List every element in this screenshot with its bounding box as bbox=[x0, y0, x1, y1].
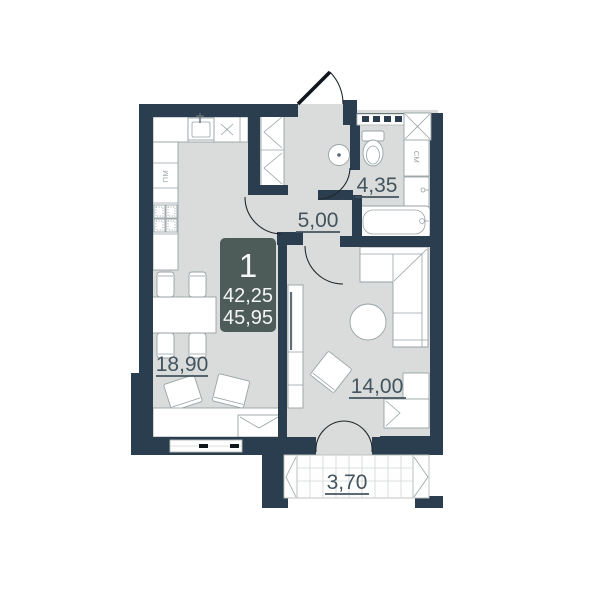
dining-table bbox=[150, 297, 216, 333]
wall bbox=[352, 195, 362, 240]
wall bbox=[248, 117, 260, 187]
room-label-living-room: 14,00 bbox=[351, 375, 404, 398]
room-label-balcony: 3,70 bbox=[327, 471, 368, 494]
entrance-door-leaf bbox=[298, 72, 330, 104]
bath-vanity bbox=[404, 177, 429, 207]
floor-plan-canvas: ПМ bbox=[0, 0, 600, 600]
bath-vent-strip bbox=[357, 114, 404, 125]
wall bbox=[278, 235, 287, 438]
wall bbox=[340, 236, 354, 247]
wall bbox=[139, 104, 298, 117]
unit-area-total: 45,95 bbox=[223, 307, 273, 329]
floor-plan: ПМ bbox=[0, 0, 600, 600]
glazing-panel bbox=[413, 455, 429, 498]
entrance-opening bbox=[298, 104, 343, 117]
vent-shaft bbox=[404, 113, 431, 140]
room-label-hallway: 5,00 bbox=[298, 209, 339, 232]
balcony-door-opening bbox=[316, 437, 372, 455]
room-label-kitchen-living: 18,90 bbox=[156, 353, 209, 376]
unit-area-living: 42,25 bbox=[223, 285, 273, 307]
toilet bbox=[362, 131, 384, 141]
coffee-table bbox=[350, 304, 386, 340]
washer-label: СМ bbox=[412, 151, 421, 164]
unit-rooms-count: 1 bbox=[239, 247, 257, 284]
entrance-door-arc bbox=[330, 72, 343, 104]
unit-badge: 1 42,25 45,95 bbox=[220, 238, 276, 332]
wall bbox=[352, 236, 443, 247]
dresser bbox=[238, 415, 280, 437]
wall bbox=[430, 113, 443, 453]
room-label-bathroom: 4,35 bbox=[357, 174, 398, 197]
kitchen-window bbox=[170, 440, 242, 452]
dishwasher-label: ПМ bbox=[161, 170, 170, 183]
wall bbox=[248, 185, 288, 195]
